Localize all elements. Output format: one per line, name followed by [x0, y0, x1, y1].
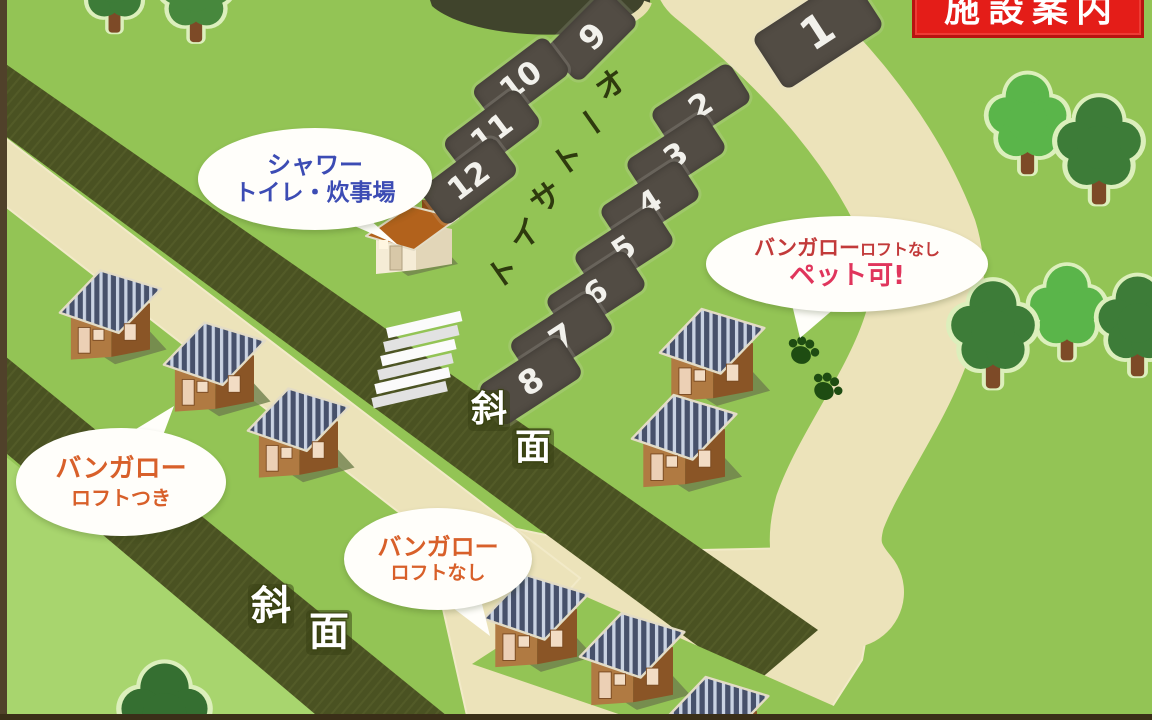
- slope-label-char: 面: [512, 428, 554, 469]
- facilities-bubble: シャワー トイレ・炊事場: [198, 128, 432, 230]
- site-number: 8: [511, 361, 548, 401]
- slope-label-char: 斜: [468, 390, 510, 431]
- edge-sliver-bottom: [0, 714, 1152, 720]
- loft-bungalow-subtitle: ロフトつき: [71, 486, 171, 510]
- pets-bungalow-title: バンガローロフトなし: [754, 236, 940, 261]
- pets-bungalow-title-text: バンガロー: [754, 236, 860, 260]
- site-number: 1: [793, 5, 843, 59]
- facility-guide-label: 施設案内: [944, 0, 1120, 32]
- map-ground: [0, 0, 1152, 720]
- no-loft-bungalow-subtitle: ロフトなし: [390, 562, 485, 585]
- no-loft-bungalow-bubble: バンガロー ロフトなし: [344, 508, 532, 610]
- pets-allowed-note: ペット可!: [789, 261, 905, 292]
- pets-bungalow-bubble: バンガローロフトなし ペット可!: [706, 216, 988, 312]
- no-loft-bungalow-title: バンガロー: [377, 533, 498, 562]
- facilities-line-2: トイレ・炊事場: [235, 180, 396, 208]
- edge-sliver-left: [0, 0, 7, 720]
- slope-label-char: 面: [306, 610, 352, 655]
- slope-label-char: 斜: [248, 584, 294, 629]
- campground-map: 123456789101112 オートサイト 斜面斜面 施設案内 シャワー トイ…: [0, 0, 1152, 720]
- loft-bungalow-title: バンガロー: [55, 454, 186, 485]
- loft-bungalow-bubble: バンガロー ロフトつき: [16, 428, 226, 536]
- facility-guide-badge: 施設案内: [912, 0, 1144, 38]
- facilities-line-1: シャワー: [267, 151, 363, 180]
- site-number: 9: [572, 16, 612, 56]
- pets-bungalow-subtitle-text: ロフトなし: [860, 240, 940, 259]
